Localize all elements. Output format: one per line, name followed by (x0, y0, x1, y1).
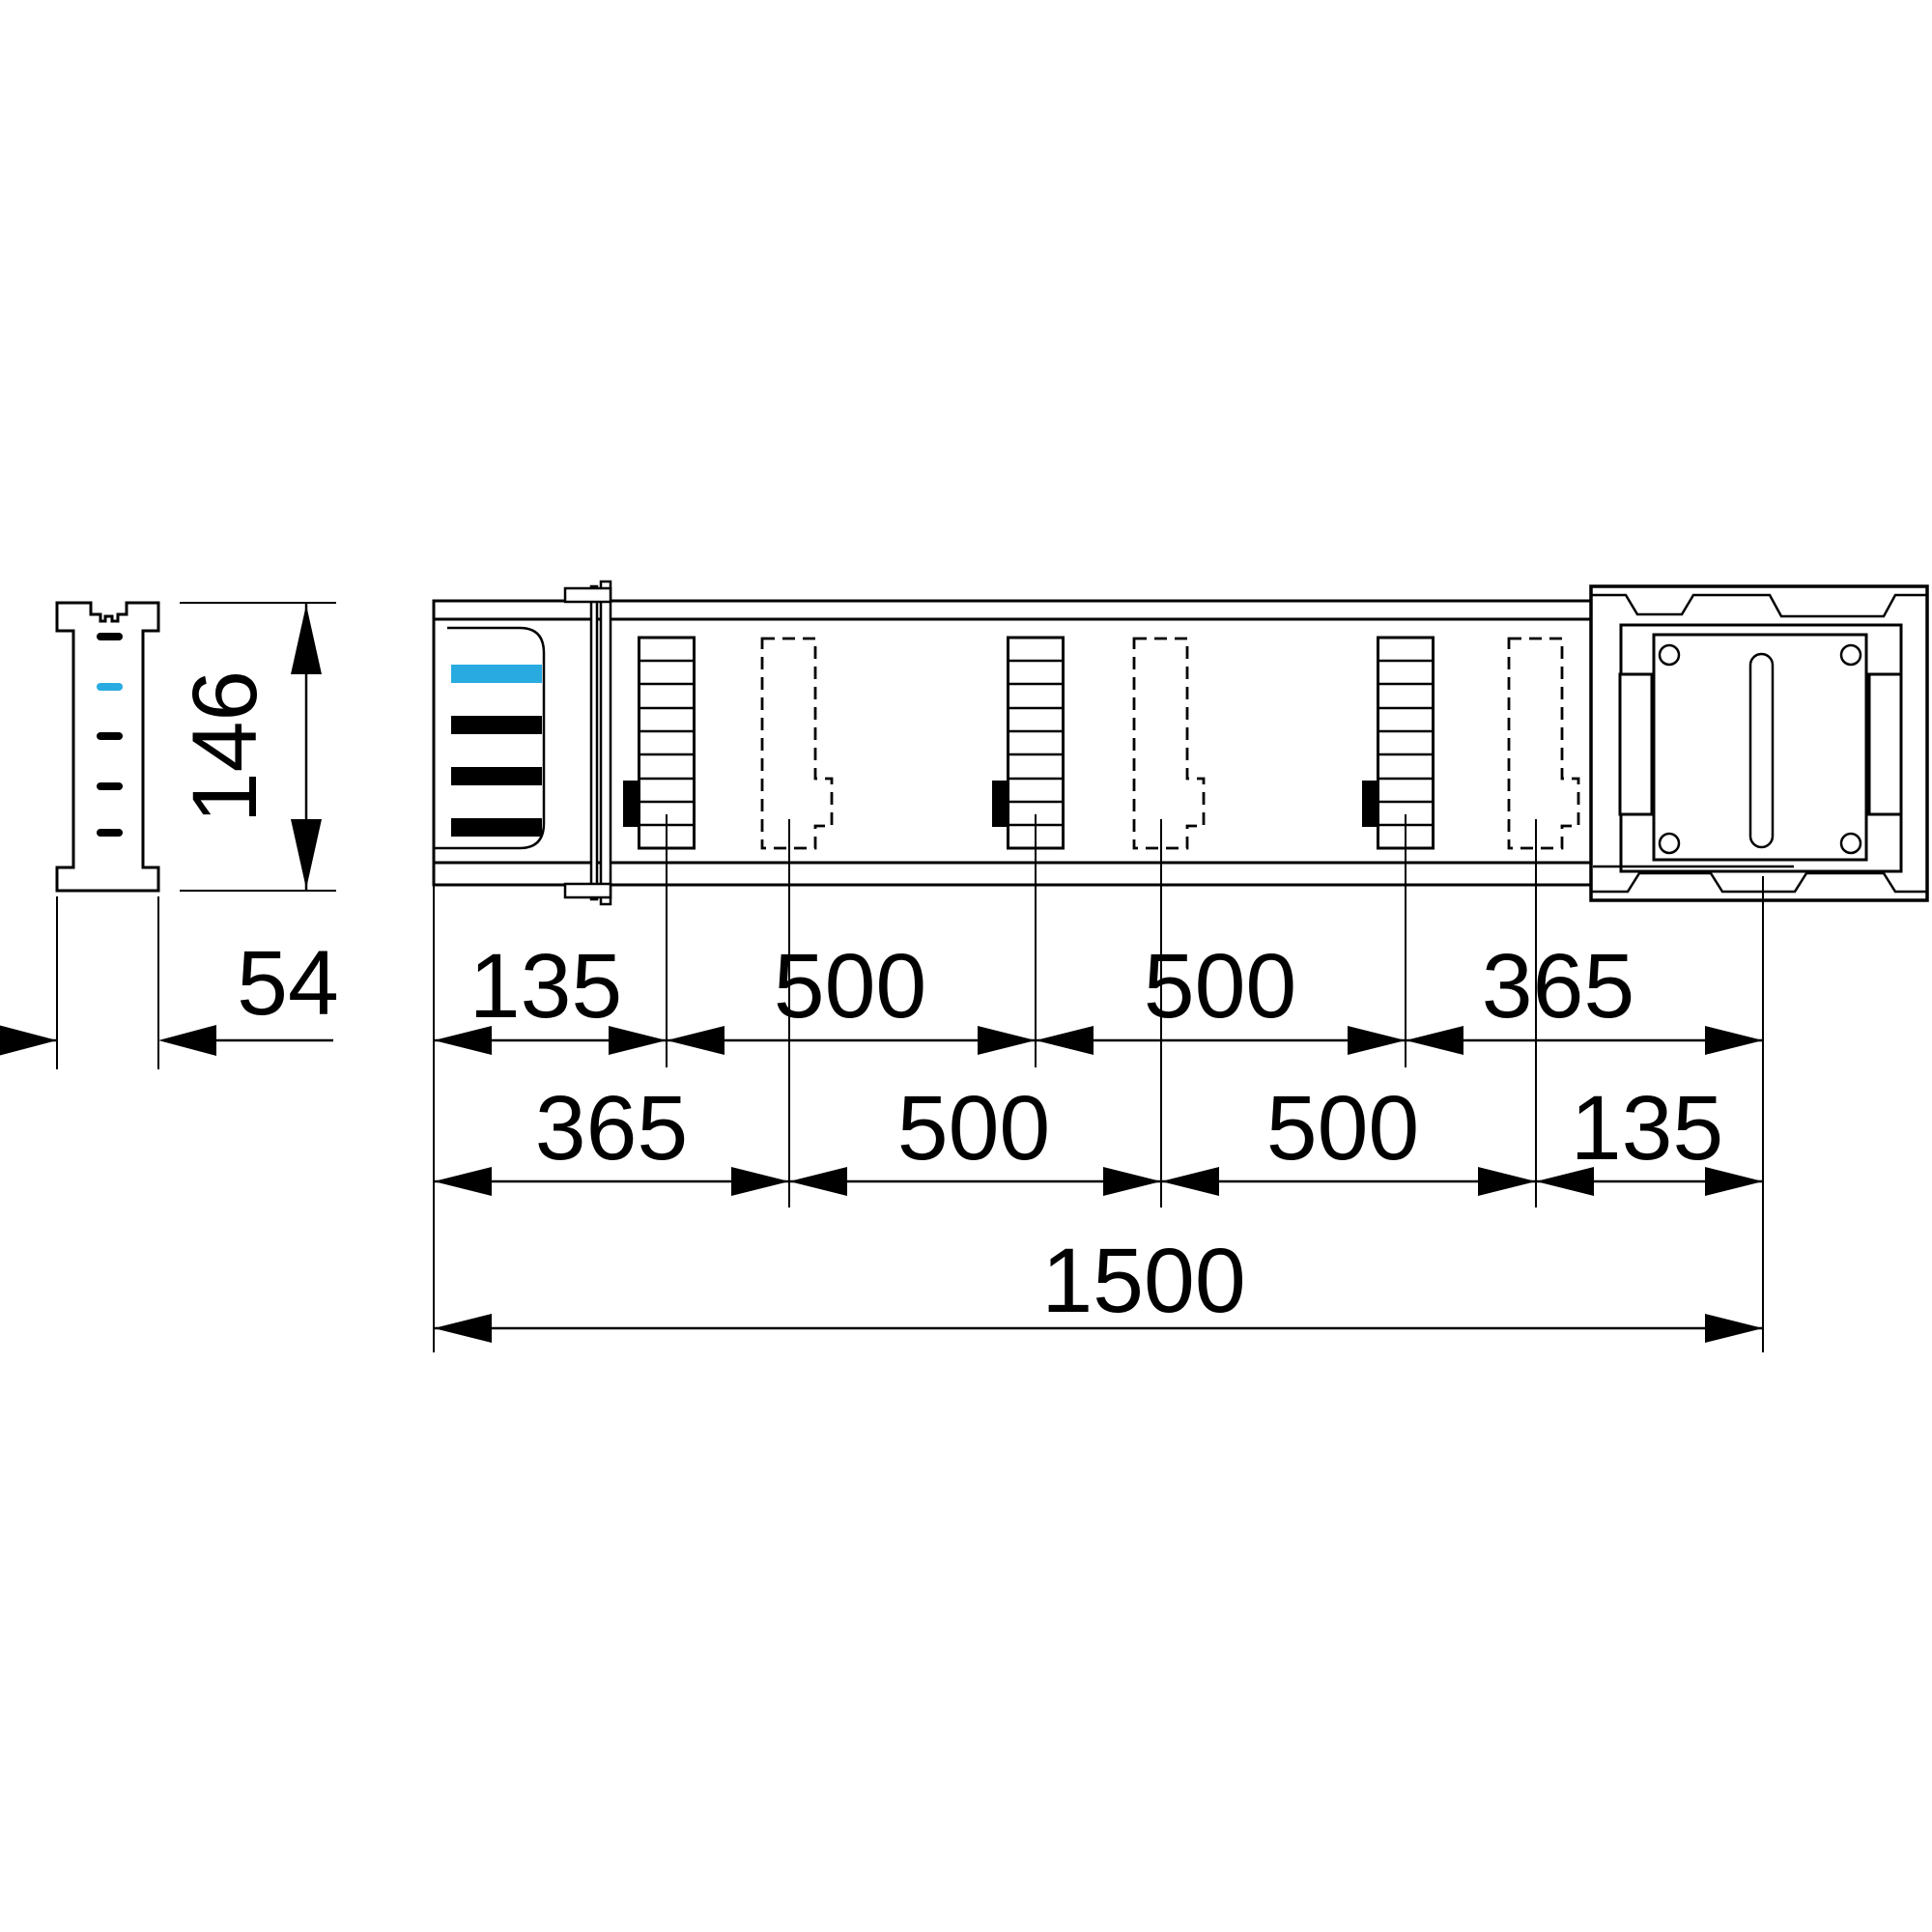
arrow-up-icon (291, 605, 322, 674)
tap-off-unit-2 (992, 638, 1064, 848)
dim-label-row2-seg3: 500 (1266, 1077, 1420, 1179)
dimension-height-146: 146 (174, 603, 336, 891)
dim-label-width: 54 (237, 932, 339, 1035)
end-feed-box (1591, 586, 1927, 900)
profile-outline (57, 603, 158, 891)
tap-off-outline-dashed-1 (762, 639, 832, 848)
feed-box-side-block-left (1620, 674, 1652, 814)
conductor-tick (97, 732, 123, 740)
dimension-row-total: 1500 (434, 1230, 1763, 1343)
dimension-row-top: 135 500 500 365 (434, 935, 1763, 1055)
technical-drawing-page: 146 54 (0, 0, 1932, 1932)
phase-stripe-black (451, 818, 542, 837)
trunking-plan-view (434, 582, 1927, 904)
black-marker (992, 781, 1009, 827)
conductor-tick-accent (97, 683, 123, 691)
conductor-tick (97, 633, 123, 640)
dim-label-row2-seg2: 500 (897, 1077, 1051, 1179)
dim-label-row2-seg1: 365 (535, 1077, 689, 1179)
joint-plate (591, 586, 597, 899)
joint-top-tab (565, 588, 611, 602)
left-end-cap (434, 628, 544, 848)
dim-label-total-length: 1500 (1041, 1230, 1245, 1332)
dim-label-row1-seg1: 135 (469, 935, 623, 1037)
dim-label-row2-seg4: 135 (1571, 1077, 1724, 1179)
tap-off-unit-3 (1362, 638, 1434, 848)
joint-cover (565, 582, 611, 904)
feed-box-plate (1654, 635, 1866, 860)
dim-label-row1-seg2: 500 (774, 935, 927, 1037)
arrow-left-icon (158, 1025, 216, 1056)
dim-label-row1-seg4: 365 (1482, 935, 1635, 1037)
dimension-width-54: 54 (0, 896, 339, 1069)
side-profile-view (57, 603, 158, 891)
phase-stripe-black (451, 767, 542, 785)
plan-dimensions: 135 500 500 365 365 500 500 135 1500 (434, 814, 1763, 1352)
black-marker (1362, 781, 1378, 827)
end-cap-outline (434, 628, 544, 848)
phase-stripe-accent (451, 665, 542, 683)
busbar-trunking-dimensional-drawing: 146 54 (0, 0, 1932, 1932)
arrow-right-icon (0, 1025, 57, 1056)
tap-off-outline-dashed-2 (1134, 639, 1204, 848)
dimension-row-middle: 365 500 500 135 (434, 1077, 1763, 1196)
dim-label-height: 146 (174, 670, 276, 824)
feed-box-side-block-right (1869, 674, 1901, 814)
conductor-tick (97, 829, 123, 837)
arrow-down-icon (291, 819, 322, 889)
black-marker (623, 781, 639, 827)
joint-bottom-tab (565, 884, 611, 897)
conductor-tick (97, 782, 123, 790)
phase-stripe-black (451, 716, 542, 734)
tap-off-unit-1 (623, 638, 695, 848)
dim-label-row1-seg3: 500 (1144, 935, 1297, 1037)
joint-plate (601, 582, 611, 904)
tap-off-outline-dashed-3 (1509, 639, 1578, 848)
